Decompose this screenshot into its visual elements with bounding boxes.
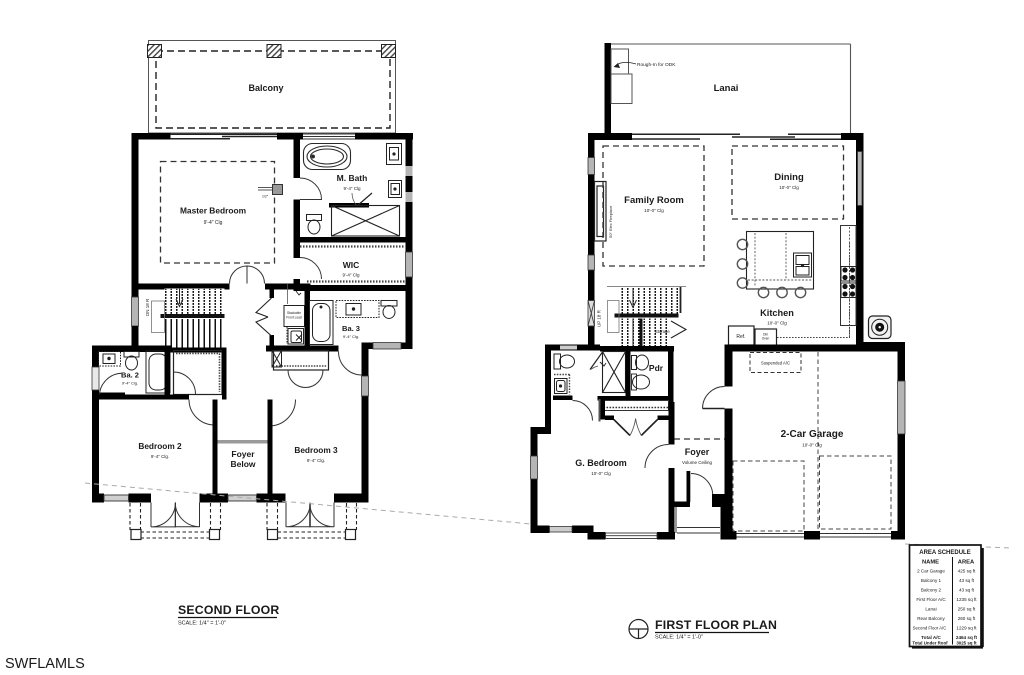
svg-text:1235 sq ft: 1235 sq ft — [956, 597, 977, 602]
svg-text:43 sq ft: 43 sq ft — [959, 588, 975, 593]
svg-text:Ba. 2: Ba. 2 — [121, 371, 139, 380]
svg-text:9′-4″ Clg.: 9′-4″ Clg. — [122, 381, 138, 386]
svg-text:Foyer: Foyer — [231, 449, 255, 459]
svg-text:50″ Elec Fireplace: 50″ Elec Fireplace — [608, 205, 613, 238]
svg-text:Bedroom 2: Bedroom 2 — [138, 441, 182, 451]
svg-text:2 Car Garage: 2 Car Garage — [917, 569, 945, 574]
svg-text:Suspended A/C: Suspended A/C — [761, 361, 790, 366]
svg-text:NAME: NAME — [922, 560, 939, 566]
svg-text:G. Bedroom: G. Bedroom — [575, 458, 627, 468]
svg-text:Kitchen: Kitchen — [760, 308, 794, 318]
svg-text:Stackable: Stackable — [287, 311, 301, 315]
svg-text:1/2″: 1/2″ — [262, 195, 269, 199]
svg-text:AREA: AREA — [958, 560, 975, 566]
svg-text:UP 18 R: UP 18 R — [597, 309, 602, 327]
svg-text:9′-4″ Clg: 9′-4″ Clg — [343, 273, 360, 278]
svg-text:First Floor A/C: First Floor A/C — [916, 597, 946, 602]
svg-text:Lanai: Lanai — [714, 83, 739, 94]
svg-text:Balcony 1: Balcony 1 — [921, 578, 942, 583]
svg-text:AREA SCHEDULE: AREA SCHEDULE — [919, 550, 970, 556]
svg-text:Oven: Oven — [762, 337, 770, 341]
svg-text:Balcony 2: Balcony 2 — [921, 588, 942, 593]
svg-text:10′-0″ Clg: 10′-0″ Clg — [644, 208, 664, 213]
svg-text:Ref.: Ref. — [736, 334, 745, 340]
svg-text:250 sq ft: 250 sq ft — [958, 607, 976, 612]
svg-text:43 sq ft: 43 sq ft — [959, 578, 975, 583]
svg-text:Master Bedroom: Master Bedroom — [180, 206, 246, 216]
svg-text:Balcony: Balcony — [248, 83, 283, 93]
svg-text:10′-0″ Clg: 10′-0″ Clg — [779, 185, 799, 190]
svg-text:SECOND FLOOR: SECOND FLOOR — [178, 603, 279, 617]
svg-text:10′-0″ Clg: 10′-0″ Clg — [802, 443, 822, 448]
svg-text:Volume Ceiling: Volume Ceiling — [682, 460, 713, 465]
svg-text:9′-4″ Clg: 9′-4″ Clg — [344, 186, 361, 191]
svg-text:WIC: WIC — [343, 260, 360, 270]
svg-text:9′-4″ Clg.: 9′-4″ Clg. — [307, 458, 325, 463]
svg-text:Front Load: Front Load — [286, 316, 302, 320]
svg-text:Family Room: Family Room — [624, 195, 684, 206]
svg-text:260 sq ft: 260 sq ft — [958, 616, 976, 621]
svg-text:2464 sq ft: 2464 sq ft — [956, 635, 978, 640]
svg-text:SCALE: 1/4″ = 1′-0″: SCALE: 1/4″ = 1′-0″ — [655, 635, 703, 641]
svg-text:Second Floor A/C: Second Floor A/C — [913, 626, 947, 631]
svg-text:Rough-In for ODK: Rough-In for ODK — [637, 62, 676, 68]
svg-text:M. Bath: M. Bath — [337, 173, 368, 183]
svg-text:9′-4″ Clg.: 9′-4″ Clg. — [343, 334, 359, 339]
svg-text:DN 18 R: DN 18 R — [145, 298, 150, 316]
svg-text:Ba. 3: Ba. 3 — [342, 324, 360, 333]
svg-text:9′-4″ Clg.: 9′-4″ Clg. — [151, 454, 169, 459]
svg-text:10′-0″ Clg: 10′-0″ Clg — [767, 321, 787, 326]
svg-text:Bedroom 3: Bedroom 3 — [294, 445, 338, 455]
svg-text:3025 sq ft: 3025 sq ft — [956, 641, 977, 646]
svg-text:Lanai: Lanai — [925, 607, 936, 612]
svg-text:Total Under Roof: Total Under Roof — [912, 641, 948, 646]
svg-text:FIRST FLOOR PLAN: FIRST FLOOR PLAN — [655, 618, 777, 632]
svg-text:Storage: Storage — [655, 329, 670, 334]
svg-text:Foyer: Foyer — [685, 447, 710, 457]
svg-text:SWFLAMLS: SWFLAMLS — [5, 656, 85, 672]
svg-text:1229 sq ft: 1229 sq ft — [956, 626, 977, 631]
svg-text:Below: Below — [230, 459, 255, 469]
svg-text:2-Car Garage: 2-Car Garage — [781, 429, 844, 440]
svg-text:Rear Balcony: Rear Balcony — [917, 616, 945, 621]
svg-text:10′-0″ Clg: 10′-0″ Clg — [591, 471, 611, 476]
svg-text:425 sq ft: 425 sq ft — [958, 569, 976, 574]
svg-text:Dining: Dining — [774, 172, 804, 183]
svg-text:SCALE: 1/4″ = 1′-0″: SCALE: 1/4″ = 1′-0″ — [178, 621, 226, 627]
svg-text:9′-4″ Clg: 9′-4″ Clg — [204, 220, 223, 226]
svg-text:Pdr: Pdr — [649, 363, 664, 373]
svg-text:Total A/C: Total A/C — [921, 635, 941, 640]
